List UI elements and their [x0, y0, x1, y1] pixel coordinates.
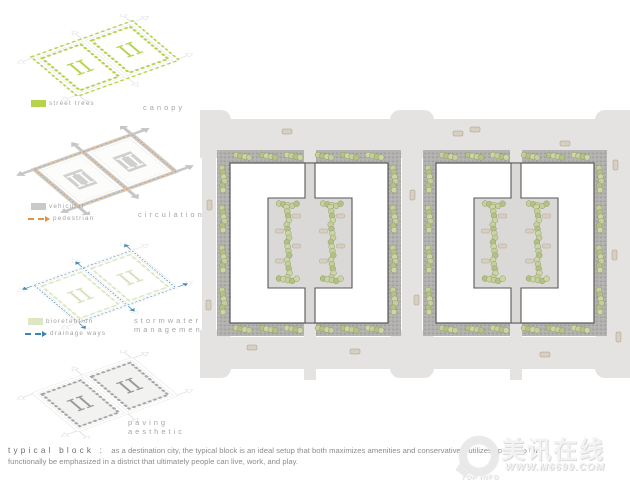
- legend-label: bioretention: [46, 318, 93, 325]
- legend-label: pedestrian: [53, 215, 94, 222]
- title-text: canopy: [143, 103, 185, 112]
- caption-heading: typical block :: [8, 446, 105, 455]
- legend-label: vehicular: [49, 203, 85, 210]
- gray-swatch-icon: [31, 203, 46, 210]
- diagram-title-circulation: circulation: [138, 210, 205, 219]
- title-text: stormwater: [134, 316, 208, 325]
- watermark-name: 美讯在线: [501, 430, 605, 465]
- watermark: 美讯在线 TOP INFO WWW.M6699.COM: [453, 430, 628, 482]
- diagram-title-stormwater: stormwater management: [134, 316, 208, 334]
- design-board: canopy circulation stormwater management…: [0, 0, 630, 486]
- legend-vehicular: vehicular: [31, 202, 85, 211]
- title-text: circulation: [138, 210, 205, 219]
- subtitle-text: management: [134, 325, 208, 334]
- dashed-line-icon: [25, 333, 41, 335]
- dashed-line-icon: [28, 218, 44, 220]
- legend-label: street trees: [49, 100, 95, 107]
- watermark-url: WWW.M6699.COM: [505, 462, 605, 473]
- legend-bioretention: bioretention: [28, 317, 93, 326]
- legend-label: drainage ways: [50, 330, 106, 337]
- legend-pedestrian: pedestrian: [28, 214, 94, 223]
- arrow-head-icon: [45, 216, 50, 222]
- title-text: paving: [128, 418, 185, 427]
- green-swatch-icon: [31, 100, 46, 107]
- legend-street-trees: street trees: [31, 99, 95, 108]
- watermark-tagline: TOP INFO: [461, 474, 499, 481]
- subtitle-text: aesthetic: [128, 427, 185, 436]
- site-plan: [200, 98, 630, 380]
- legend-drainage-ways: drainage ways: [25, 329, 106, 338]
- pale-green-swatch-icon: [28, 318, 43, 325]
- arrow-head-icon: [42, 331, 47, 337]
- diagram-title-paving: paving aesthetic: [128, 418, 185, 436]
- canopy-diagram: [12, 14, 198, 103]
- diagram-title-canopy: canopy: [143, 103, 185, 112]
- caption-line2: functionally be emphasized in a district…: [8, 457, 298, 466]
